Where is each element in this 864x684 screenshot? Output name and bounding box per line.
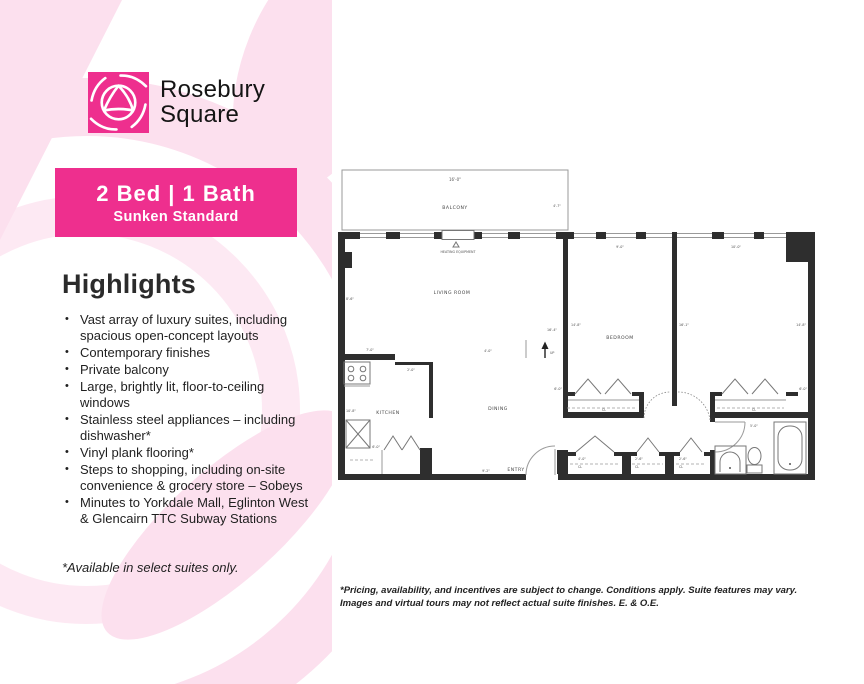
closet-label: CL [679,465,683,469]
bedroom1-door-icon [644,392,670,418]
floorplan: 16'-0" BALCONY 4'-7" HEATING EQUIPMENT L… [338,168,824,484]
highlight-item: Steps to shopping, including on-site con… [62,462,314,493]
brand-name: Rosebury Square [160,77,265,127]
balcony-width-dim: 16'-0" [449,177,461,182]
closet-label: CL [578,465,582,469]
bedroom1-closet-dim: 6'-0" [554,387,562,391]
kitchen-width-dim: 7'-0" [366,348,374,352]
bedroom1-label: BEDROOM [606,335,633,341]
availability-note: *Available in select suites only. [62,560,239,575]
kitchen-label: KITCHEN [376,410,399,416]
unit-banner: 2 Bed | 1 Bath Sunken Standard [55,168,297,237]
hall-closet2-dim: 2'-6" [635,457,643,461]
hall-closet1-dim: 4'-0" [578,457,586,461]
bedroom1-width-dim: 9'-0" [616,245,624,249]
flyer-page: Rosebury Square 2 Bed | 1 Bath Sunken St… [0,0,864,684]
living-room-label: LIVING ROOM [434,290,471,296]
highlights-heading: Highlights [62,269,196,300]
highlight-item: Stainless steel appliances – including d… [62,412,314,443]
brand-block: Rosebury Square [88,72,265,133]
highlight-item: Contemporary finishes [62,345,314,361]
walls [338,232,815,480]
unit-title: 2 Bed | 1 Bath [96,181,256,207]
kitchen-peninsula-dim: 2'-0" [407,368,415,372]
brand-name-line2: Square [160,102,265,127]
highlights-list: Vast array of luxury suites, including s… [62,312,314,528]
bedroom2-width-dim: 10'-0" [731,245,741,249]
disclaimer: *Pricing, availability, and incentives a… [340,585,830,610]
brand-name-line1: Rosebury [160,77,265,102]
closet-label: CL [635,465,639,469]
highlight-item: Vinyl plank flooring* [62,445,314,461]
stove-icon [344,362,370,384]
highlight-text: Stainless steel appliances – including d… [80,412,295,443]
up-label: UP [550,351,554,355]
laundry-closet-icon [346,420,370,448]
bath-door-icon [715,422,745,452]
kitchen-closet-dim: 6'-0" [372,445,380,449]
balcony-label: BALCONY [442,205,467,211]
disclaimer-line2: Images and virtual tours may not reflect… [340,598,659,609]
heating-label: HEATING EQUIPMENT [440,250,476,254]
bedroom2-closet-dim: 6'-0" [799,387,807,391]
disclaimer-line1: *Pricing, availability, and incentives a… [340,585,797,596]
toilet-icon [747,448,762,474]
highlight-text: Steps to shopping, including on-site con… [80,462,303,493]
bedroom2-height-dim: 14'-8" [796,323,806,327]
highlight-text: Vinyl plank flooring* [80,445,194,460]
highlight-item: Vast array of luxury suites, including s… [62,312,314,343]
living-width-dim: 16'-4" [547,328,557,332]
highlight-text: Vast array of luxury suites, including s… [80,312,287,343]
bathtub-icon [774,422,806,474]
heating-symbol-icon [453,242,459,247]
kitchen-height-dim: 10'-8" [346,409,356,413]
bath-dim: 5'-0" [750,424,758,428]
highlight-item: Private balcony [62,362,314,378]
unit-subtitle: Sunken Standard [113,209,238,225]
bedroom1-height-dim: 14'-8" [571,323,581,327]
highlight-text: Minutes to Yorkdale Mall, Eglinton West … [80,495,308,526]
highlight-item: Minutes to Yorkdale Mall, Eglinton West … [62,495,314,526]
entry-label: ENTRY [507,467,524,473]
entry-door-icon [526,446,555,475]
highlight-text: Large, brightly lit, floor-to-ceiling wi… [80,379,264,410]
closet-label: CL [602,408,606,412]
rose-logo-icon [88,72,149,133]
highlight-item: Large, brightly lit, floor-to-ceiling wi… [62,379,314,410]
dining-label: DINING [488,406,508,412]
sliding-door [442,231,474,240]
highlight-text: Contemporary finishes [80,345,210,360]
balcony-depth-dim: 4'-7" [553,204,561,208]
vanity-sink-icon [715,446,746,474]
living-height-dim: 8'-6" [346,297,354,301]
dining-width-dim: 4'-0" [484,349,492,353]
hall-closet3-dim: 2'-6" [679,457,687,461]
up-arrow-icon [542,342,549,359]
closet-label: CL [752,408,756,412]
highlight-text: Private balcony [80,362,169,377]
floorplan-drawing: 16'-0" BALCONY 4'-7" HEATING EQUIPMENT L… [338,168,824,484]
bedroom2-door-icon [678,392,710,420]
entry-width-dim: 9'-2" [482,469,490,473]
bedroom2-mid-dim: 16'-1" [679,323,689,327]
